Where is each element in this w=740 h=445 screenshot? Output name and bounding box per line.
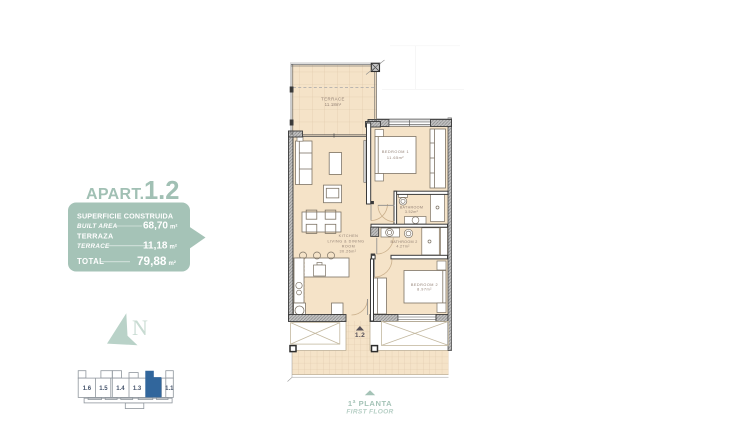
svg-text:1.3: 1.3 [133, 386, 142, 392]
svg-text:1ª PLANTA: 1ª PLANTA [348, 399, 392, 408]
svg-text:BEDROOM 2: BEDROOM 2 [411, 283, 438, 287]
svg-text:TERRACE: TERRACE [321, 97, 345, 102]
svg-text:TERRAZA: TERRAZA [77, 232, 113, 241]
svg-text:4.27m²: 4.27m² [396, 244, 410, 248]
svg-text:1.2: 1.2 [355, 332, 365, 339]
svg-text:1.2: 1.2 [144, 177, 179, 205]
svg-text:BEDROOM 1: BEDROOM 1 [382, 150, 409, 154]
svg-text:1.1: 1.1 [165, 386, 174, 392]
svg-text:LIVING & DINING: LIVING & DINING [327, 239, 364, 243]
svg-text:TOTAL: TOTAL [77, 257, 104, 266]
svg-text:KITCHEN: KITCHEN [339, 234, 359, 238]
svg-text:m²: m² [170, 224, 177, 231]
svg-text:79,88: 79,88 [137, 254, 167, 268]
svg-text:11.65m²: 11.65m² [387, 156, 404, 160]
svg-text:SUPERFICIE CONSTRUIDA: SUPERFICIE CONSTRUIDA [77, 212, 173, 221]
svg-text:8.97m²: 8.97m² [417, 288, 432, 292]
svg-text:m²: m² [169, 260, 176, 267]
svg-text:N: N [132, 315, 148, 340]
svg-text:ROOM: ROOM [342, 245, 355, 249]
svg-text:11,18: 11,18 [143, 241, 168, 252]
svg-text:68,70: 68,70 [143, 221, 168, 232]
svg-text:m²: m² [170, 244, 177, 251]
svg-text:1.4: 1.4 [116, 386, 125, 392]
svg-text:APART.: APART. [86, 186, 144, 203]
svg-text:11.18m²: 11.18m² [325, 102, 342, 107]
svg-text:3.52m²: 3.52m² [405, 210, 419, 214]
svg-text:TERRACE: TERRACE [77, 243, 110, 250]
svg-text:30.26m²: 30.26m² [339, 250, 356, 254]
svg-text:1.5: 1.5 [99, 386, 108, 392]
svg-text:1.6: 1.6 [83, 386, 92, 392]
svg-text:BUILT AREA: BUILT AREA [77, 223, 118, 230]
svg-text:FIRST FLOOR: FIRST FLOOR [346, 409, 393, 416]
